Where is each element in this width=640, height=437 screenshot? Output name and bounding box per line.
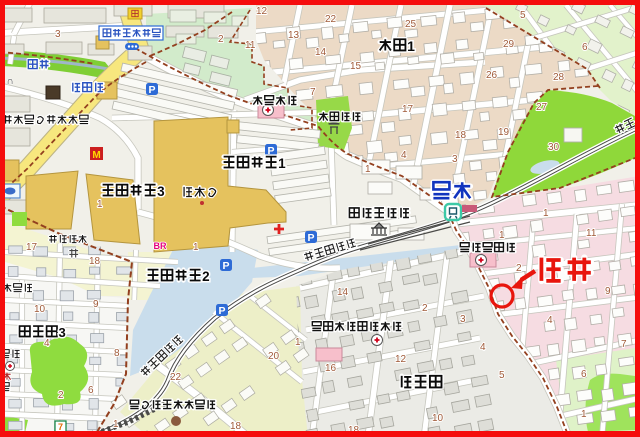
svg-text:1: 1 [581,409,587,420]
svg-text:11: 11 [586,228,597,239]
svg-text:18: 18 [455,130,467,141]
svg-text:1: 1 [295,337,301,348]
svg-text:4: 4 [480,342,486,353]
svg-text:5: 5 [499,370,505,381]
svg-text:16: 16 [325,363,337,374]
svg-text:14: 14 [315,47,327,58]
svg-text:25: 25 [405,19,417,30]
svg-text:3: 3 [460,314,466,325]
svg-text:1: 1 [193,242,199,253]
svg-text:2: 2 [58,390,64,401]
svg-text:17: 17 [26,242,38,253]
svg-text:P: P [148,84,155,96]
svg-text:14: 14 [337,287,349,298]
svg-text:19: 19 [498,127,510,138]
svg-text:1: 1 [499,230,505,241]
svg-text:∩: ∩ [6,76,13,87]
svg-text:P: P [307,232,314,244]
svg-text:2: 2 [516,263,522,274]
svg-text:10: 10 [34,304,46,315]
svg-text:BR: BR [154,241,167,251]
svg-text:1: 1 [407,38,415,54]
svg-text:4: 4 [547,315,553,326]
svg-text:2: 2 [218,34,224,45]
svg-text:9: 9 [605,286,611,297]
svg-text:12: 12 [256,6,268,17]
svg-text:3: 3 [157,184,165,199]
svg-text:29: 29 [503,39,515,50]
svg-text:3: 3 [452,154,458,165]
svg-text:22: 22 [325,14,337,25]
svg-text:6: 6 [582,42,588,53]
svg-text:22: 22 [170,372,182,383]
svg-text:7: 7 [621,339,627,350]
svg-text:26: 26 [486,70,498,81]
svg-text:P: P [218,305,225,317]
svg-text:1: 1 [543,208,549,219]
svg-text:13: 13 [288,30,300,41]
svg-text:10: 10 [432,413,444,424]
svg-text:30: 30 [548,142,560,153]
svg-text:M: M [92,150,100,161]
svg-text:27: 27 [536,102,548,113]
svg-text:4: 4 [401,150,407,161]
svg-text:7: 7 [310,87,316,98]
svg-text:11: 11 [245,40,256,51]
svg-text:6: 6 [88,385,94,396]
svg-text:3: 3 [59,325,66,340]
svg-text:3: 3 [55,29,61,40]
svg-text:1: 1 [113,419,119,430]
svg-text:5: 5 [520,10,526,21]
svg-text:1: 1 [278,156,286,171]
svg-text:20: 20 [268,351,280,362]
svg-text:18: 18 [89,256,101,267]
svg-text:P: P [222,260,229,272]
svg-text:15: 15 [350,61,362,72]
svg-text:12: 12 [395,354,407,365]
svg-text:6: 6 [581,369,587,380]
svg-text:1: 1 [97,199,103,210]
svg-text:1: 1 [365,164,371,175]
svg-text:18: 18 [230,421,242,432]
svg-text:4: 4 [44,338,50,349]
svg-text:17: 17 [402,104,414,115]
svg-text:8: 8 [114,348,120,359]
svg-text:7: 7 [58,422,63,432]
svg-text:9: 9 [93,299,99,310]
svg-text:28: 28 [553,72,565,83]
svg-text:2: 2 [202,269,210,284]
svg-text:2: 2 [422,303,428,314]
